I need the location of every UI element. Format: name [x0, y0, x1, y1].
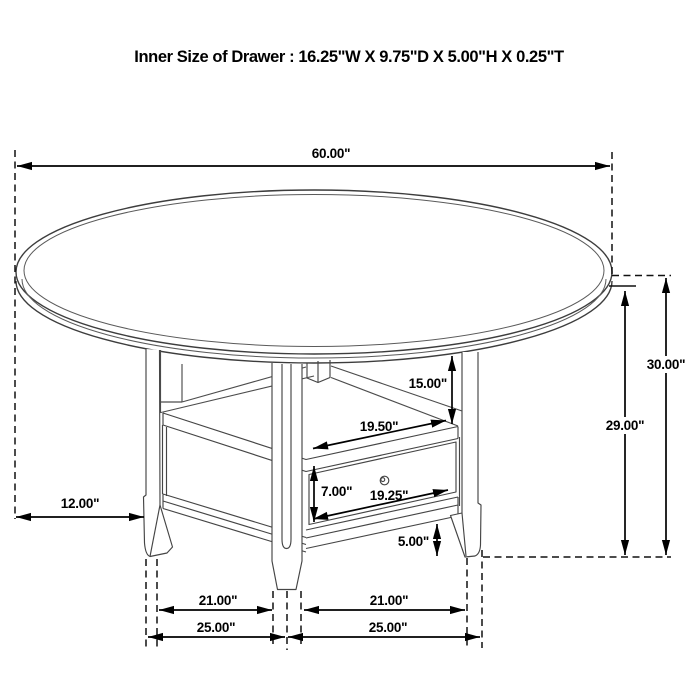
dim-label-leg-span-right: 21.00"	[370, 593, 408, 608]
dim-label-overhang: 12.00"	[61, 496, 99, 511]
dim-label-apron-height: 29.00"	[606, 418, 644, 433]
dim-label-drawer-height: 7.00"	[321, 484, 352, 499]
dim-label-base-span-left: 25.00"	[197, 620, 235, 635]
table-top	[16, 190, 612, 363]
extension-lines	[15, 150, 671, 650]
drawer-inner-size-title: Inner Size of Drawer : 16.25"W X 9.75"D …	[134, 48, 564, 66]
dimension-lines	[16, 166, 666, 637]
dim-label-drawer-width: 19.25"	[370, 488, 408, 503]
dim-label-top-to-shelf: 15.00"	[409, 376, 447, 391]
dim-label-shelf-width: 19.50"	[360, 419, 398, 434]
dim-label-total-height: 30.00"	[647, 357, 685, 372]
table-leg-left	[144, 349, 173, 557]
dim-label-table-diameter: 60.00"	[312, 146, 350, 161]
dim-label-rail-clearance: 5.00"	[398, 534, 429, 549]
dim-label-base-span-right: 25.00"	[369, 620, 407, 635]
dimension-diagram-page: Inner Size of Drawer : 16.25"W X 9.75"D …	[0, 0, 700, 700]
table-drawing	[16, 190, 612, 590]
round-table-dimension-diagram: Inner Size of Drawer : 16.25"W X 9.75"D …	[0, 0, 700, 700]
dim-label-leg-span-left: 21.00"	[199, 593, 237, 608]
table-leg-front	[272, 363, 302, 590]
